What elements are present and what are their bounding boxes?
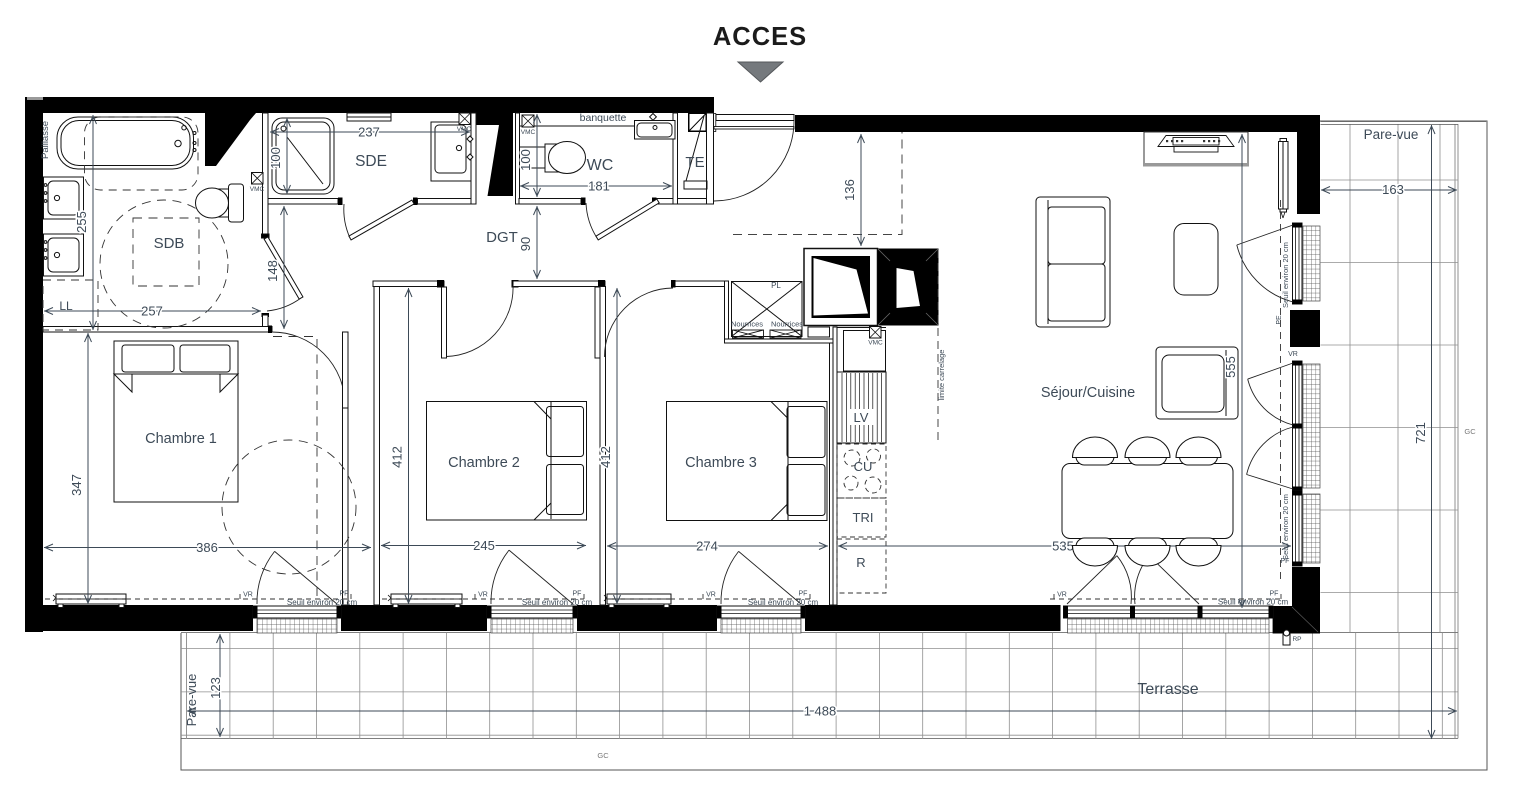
svg-text:PF: PF — [1281, 558, 1290, 565]
svg-text:PE: PE — [1276, 315, 1283, 325]
svg-text:banquette: banquette — [580, 112, 627, 124]
svg-text:Nourrices: Nourrices — [771, 320, 803, 329]
svg-text:ACCES: ACCES — [713, 23, 807, 51]
svg-text:SDB: SDB — [154, 235, 185, 252]
svg-text:WC: WC — [587, 157, 614, 174]
svg-text:VR: VR — [1288, 351, 1298, 358]
svg-text:100: 100 — [268, 147, 283, 169]
svg-text:GC: GC — [597, 751, 609, 760]
svg-text:Terrasse: Terrasse — [1137, 681, 1198, 698]
svg-text:123: 123 — [208, 677, 223, 699]
svg-text:VR: VR — [243, 592, 253, 599]
svg-text:GC: GC — [1464, 427, 1476, 436]
svg-text:721: 721 — [1413, 422, 1428, 444]
svg-text:VR: VR — [478, 592, 488, 599]
svg-text:535: 535 — [1052, 539, 1074, 554]
svg-text:Seuil environ 20 cm: Seuil environ 20 cm — [1281, 242, 1290, 308]
svg-text:R: R — [856, 555, 865, 570]
svg-text:Chambre 2: Chambre 2 — [448, 455, 520, 471]
svg-text:386: 386 — [196, 540, 218, 555]
svg-text:PF: PF — [573, 591, 582, 598]
svg-text:CU: CU — [854, 459, 873, 474]
svg-text:100: 100 — [518, 149, 533, 171]
svg-text:Seuil environ 20 cm: Seuil environ 20 cm — [522, 598, 593, 607]
svg-text:VMC: VMC — [250, 186, 265, 193]
svg-text:274: 274 — [696, 539, 718, 554]
svg-text:Chambre 1: Chambre 1 — [145, 431, 217, 447]
svg-text:VR: VR — [1057, 592, 1067, 599]
svg-text:PF: PF — [799, 591, 808, 598]
svg-text:Seuil environ 20 cm: Seuil environ 20 cm — [287, 598, 358, 607]
svg-text:Pare-vue: Pare-vue — [1364, 127, 1419, 142]
svg-text:Seuil environ 20 cm: Seuil environ 20 cm — [1218, 598, 1289, 607]
svg-text:VMC: VMC — [521, 129, 536, 136]
svg-text:Seuil environ 20 cm: Seuil environ 20 cm — [1281, 494, 1290, 560]
svg-text:Séjour/Cuisine: Séjour/Cuisine — [1041, 385, 1135, 401]
svg-text:181: 181 — [588, 179, 610, 194]
svg-text:SDE: SDE — [355, 153, 387, 170]
svg-text:VR: VR — [706, 592, 716, 599]
svg-text:PF: PF — [1270, 591, 1279, 598]
svg-text:limite carrelage: limite carrelage — [937, 350, 946, 401]
svg-text:136: 136 — [842, 179, 857, 201]
svg-text:90: 90 — [518, 237, 533, 251]
svg-text:Chambre 3: Chambre 3 — [685, 455, 757, 471]
svg-text:148: 148 — [265, 260, 280, 282]
svg-text:TE: TE — [685, 154, 704, 171]
svg-text:DGT: DGT — [486, 229, 518, 246]
svg-text:237: 237 — [358, 125, 380, 140]
svg-text:163: 163 — [1382, 182, 1404, 197]
svg-text:257: 257 — [141, 304, 163, 319]
svg-text:555: 555 — [1223, 356, 1238, 378]
svg-text:1 488: 1 488 — [804, 704, 837, 719]
svg-text:Paillasse: Paillasse — [40, 121, 51, 159]
svg-text:LV: LV — [854, 410, 869, 425]
svg-text:Pare-vue: Pare-vue — [184, 674, 199, 727]
svg-text:RP: RP — [1292, 636, 1301, 643]
svg-text:PL: PL — [771, 281, 781, 290]
svg-text:412: 412 — [390, 446, 405, 468]
svg-text:347: 347 — [69, 474, 84, 496]
svg-text:Nourrices: Nourrices — [731, 320, 763, 329]
svg-text:VMC: VMC — [868, 340, 883, 347]
svg-text:412: 412 — [598, 446, 613, 468]
svg-text:TRI: TRI — [853, 510, 874, 525]
svg-text:PF: PF — [340, 591, 349, 598]
svg-text:Seuil environ 20 cm: Seuil environ 20 cm — [748, 598, 819, 607]
svg-text:255: 255 — [74, 211, 89, 233]
svg-text:245: 245 — [473, 538, 495, 553]
